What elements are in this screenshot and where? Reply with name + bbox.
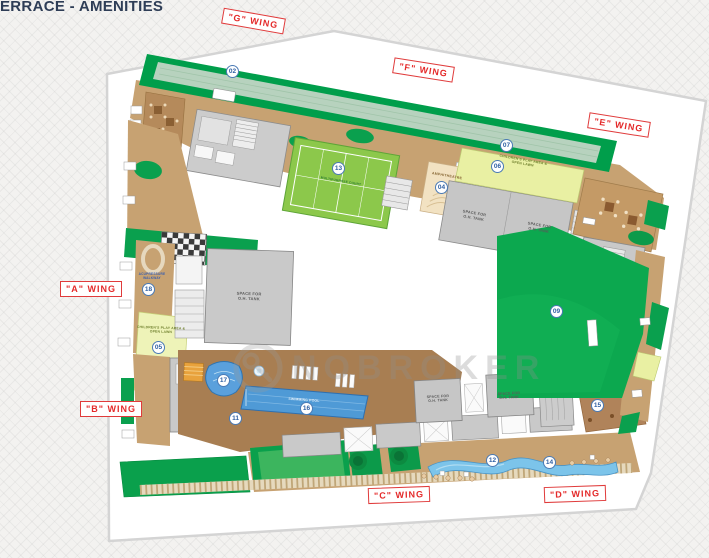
amenity-marker: 02 — [226, 65, 239, 78]
amenity-marker: 05 — [152, 341, 165, 354]
site-plan — [0, 0, 709, 558]
area-label: ACUPRESSURE WALKWAY — [139, 272, 166, 280]
amenity-marker: 09 — [550, 305, 563, 318]
amenity-marker: 18 — [142, 283, 155, 296]
amenity-marker: 14 — [543, 456, 556, 469]
terrace-amenities-plan: NOBROKER "G" WING"F" WING"E" WING"A" WIN… — [0, 0, 709, 558]
area-label: SPACE FOR O.H. TANK — [236, 291, 261, 302]
wing-label: "B" WING — [80, 401, 142, 417]
area-label: CHILDREN'S PLAY AREA & OPEN LAWN — [137, 325, 186, 335]
wing-label: "C" WING — [368, 486, 431, 504]
page-title: ERRACE - AMENITIES — [0, 0, 163, 15]
amenity-marker: 17 — [217, 374, 230, 387]
amenity-marker: 13 — [332, 162, 345, 175]
amenity-marker: 07 — [500, 139, 513, 152]
amenity-marker: 12 — [486, 454, 499, 467]
amenity-marker: 11 — [229, 412, 242, 425]
wing-label: "D" WING — [544, 485, 607, 503]
wing-label: "A" WING — [60, 281, 122, 297]
amenity-marker: 04 — [435, 181, 448, 194]
amenity-marker: 15 — [591, 399, 604, 412]
area-label: SPACE FOR O.H. TANK — [427, 394, 450, 404]
area-label: SPACE FOR O.H. TANK — [498, 391, 521, 401]
amenity-marker: 16 — [300, 402, 313, 415]
